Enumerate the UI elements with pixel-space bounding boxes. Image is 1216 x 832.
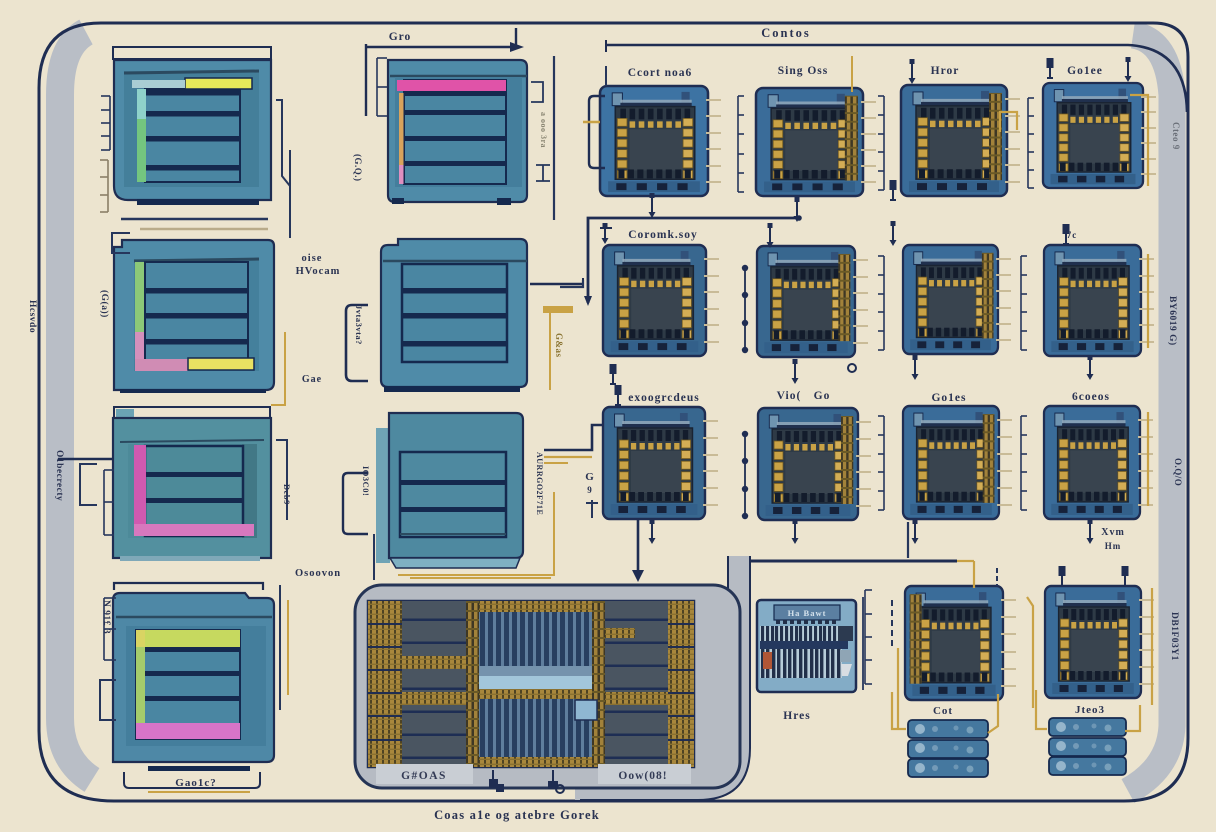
svg-text:Hror: Hror <box>931 65 960 77</box>
svg-text:7c: 7c <box>1067 230 1078 240</box>
svg-text:Xvm: Xvm <box>1101 527 1125 538</box>
svg-text:Cot: Cot <box>933 705 953 717</box>
svg-text:N 91£ 3: N 91£ 3 <box>101 600 111 634</box>
svg-text:Oow(08!: Oow(08! <box>618 770 667 782</box>
svg-text:Jteo3: Jteo3 <box>1075 704 1105 716</box>
svg-text:G&as: G&as <box>554 333 564 358</box>
svg-text:Cteo 9: Cteo 9 <box>1171 122 1181 150</box>
svg-text:Hm: Hm <box>1105 541 1122 551</box>
svg-text:O1becrecty: O1becrecty <box>54 450 64 501</box>
svg-text:Ccort noa6: Ccort noa6 <box>628 67 693 79</box>
svg-text:HVocam: HVocam <box>296 266 341 277</box>
svg-text:Gro: Gro <box>389 31 412 43</box>
svg-text:9: 9 <box>587 485 593 495</box>
svg-text:oise: oise <box>302 253 323 264</box>
svg-text:Coas a1e og atebre Gorek: Coas a1e og atebre Gorek <box>434 808 600 822</box>
svg-text:Contos: Contos <box>761 26 811 40</box>
svg-text:G: G <box>585 471 595 483</box>
svg-text:Coromk.soy: Coromk.soy <box>628 229 698 241</box>
svg-text:Ha Bawt: Ha Bawt <box>788 608 827 618</box>
svg-text:exoogrcdeus: exoogrcdeus <box>628 392 699 404</box>
svg-text:G#OAS: G#OAS <box>401 770 447 782</box>
svg-text:BY6019 G): BY6019 G) <box>1167 296 1178 346</box>
svg-text:Vio(: Vio( <box>777 390 802 402</box>
svg-text:DB1F03Y1: DB1F03Y1 <box>1169 612 1179 661</box>
svg-text:Gae: Gae <box>302 374 322 385</box>
svg-text:IO3C0!: IO3C0! <box>361 466 371 496</box>
svg-text:Go1es: Go1es <box>931 392 966 404</box>
svg-text:O.Q/O: O.Q/O <box>1173 458 1183 486</box>
svg-text:Jvta3vta?: Jvta3vta? <box>354 305 364 345</box>
svg-text:Sing Oss: Sing Oss <box>778 65 829 77</box>
svg-text:AURRGO2F71E: AURRGO2F71E <box>535 452 544 515</box>
svg-text:Gao1c?: Gao1c? <box>175 777 216 789</box>
svg-text:Hcsvdo: Hcsvdo <box>27 300 37 333</box>
svg-text:Go: Go <box>814 390 831 402</box>
svg-text:(G(a)): (G(a)) <box>99 290 110 318</box>
svg-text:6coeos: 6coeos <box>1072 391 1110 403</box>
svg-text:Dcb9: Dcb9 <box>282 484 292 505</box>
svg-text:a ooo 3ra: a ooo 3ra <box>539 112 548 148</box>
svg-text:Hres: Hres <box>783 710 810 722</box>
svg-text:Osoovon: Osoovon <box>295 568 341 579</box>
svg-text:(G.Q.): (G.Q.) <box>353 154 363 182</box>
svg-text:Go1ee: Go1ee <box>1067 65 1103 77</box>
